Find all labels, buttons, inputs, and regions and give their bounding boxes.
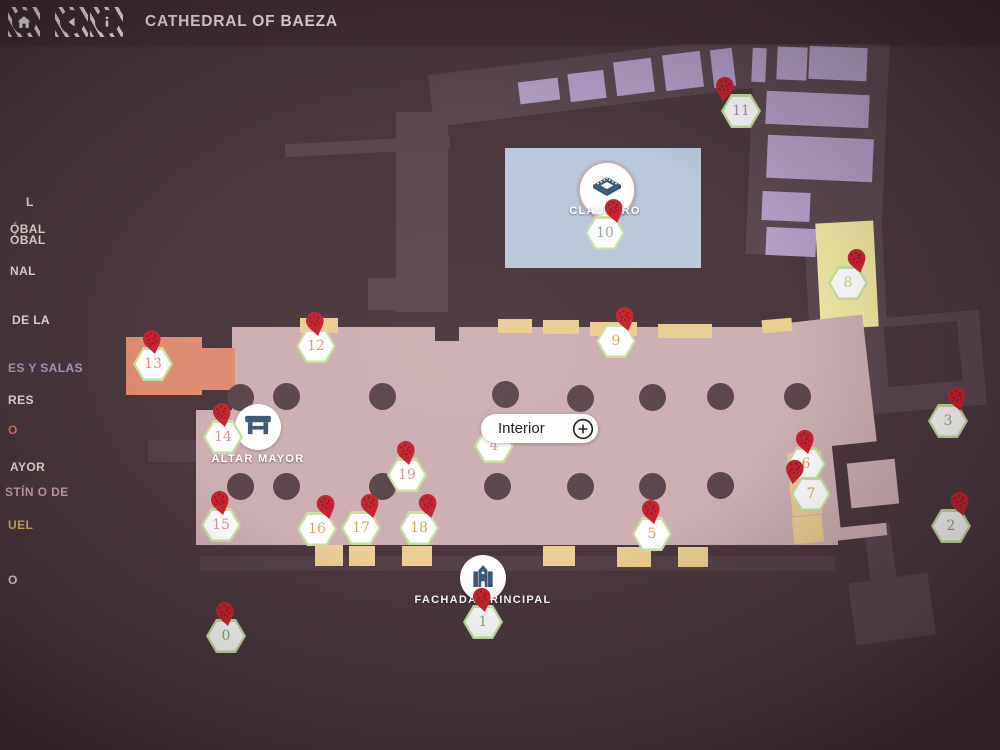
pillar	[567, 385, 594, 412]
cloister-west-notch	[368, 278, 448, 310]
east-room	[751, 48, 766, 83]
north-room	[662, 51, 704, 91]
info-button[interactable]	[90, 7, 123, 37]
sidebar-item[interactable]: RES	[8, 393, 34, 407]
pillar	[707, 383, 734, 410]
chapel	[792, 515, 825, 545]
header-bar: CATHEDRAL OF BAEZA	[0, 0, 1000, 44]
pillar	[273, 473, 300, 500]
cathedral-map-screen: CLAUSTRO ALTAR MAYOR FACHADA	[0, 0, 1000, 750]
southeast-annex	[848, 573, 936, 646]
sidebar-item[interactable]: L	[26, 195, 34, 209]
chapel	[349, 546, 375, 566]
pillar	[707, 472, 734, 499]
pillar	[227, 473, 254, 500]
map-marker-13[interactable]: 13	[133, 347, 173, 381]
map-marker-0[interactable]: 0	[206, 619, 246, 653]
map-marker-10[interactable]: 10	[585, 216, 625, 250]
sidebar-item[interactable]: O	[8, 423, 18, 437]
sidebar-item[interactable]: ES Y SALAS	[8, 361, 83, 375]
interior-view-button[interactable]: Interior	[481, 414, 598, 443]
east-room	[765, 227, 816, 257]
interior-button-label: Interior	[498, 420, 545, 437]
pillar	[639, 473, 666, 500]
north-room	[567, 70, 606, 102]
altar-mayor-label: ALTAR MAYOR	[188, 453, 328, 465]
sacristy-room	[847, 459, 899, 509]
capilla-dorada-tab	[200, 348, 235, 390]
red-pin-icon	[782, 458, 806, 491]
east-room	[765, 91, 869, 128]
east-room	[808, 46, 867, 81]
pillar	[484, 473, 511, 500]
sidebar-item[interactable]: O	[8, 573, 18, 587]
home-icon	[12, 10, 36, 34]
north-room	[613, 58, 655, 96]
chapel	[678, 547, 708, 567]
chapel	[402, 546, 432, 566]
northeast-tower	[884, 321, 963, 387]
map-marker-14[interactable]: 14	[203, 420, 243, 454]
pillar	[492, 381, 519, 408]
pillar	[639, 384, 666, 411]
red-pin-icon	[712, 75, 736, 108]
map-marker-8[interactable]: 8	[828, 266, 868, 300]
chapel	[761, 318, 792, 334]
chapel	[498, 319, 532, 333]
map-marker-3[interactable]: 3	[928, 404, 968, 438]
chapel	[658, 324, 712, 338]
map-marker-5[interactable]: 5	[632, 517, 672, 551]
map-marker-12[interactable]: 12	[296, 329, 336, 363]
east-room	[761, 191, 810, 222]
east-room	[776, 46, 807, 80]
map-marker-18[interactable]: 18	[399, 511, 439, 545]
map-marker-9[interactable]: 9	[596, 324, 636, 358]
back-button[interactable]	[55, 7, 88, 37]
pillar	[784, 383, 811, 410]
plus-icon	[572, 418, 594, 440]
chapel	[315, 545, 343, 566]
map-marker-7[interactable]: 7	[791, 477, 831, 511]
altar-icon	[244, 414, 272, 441]
map-marker-19[interactable]: 19	[387, 458, 427, 492]
sidebar-item[interactable]: ÓBAL	[10, 233, 46, 247]
chapel	[543, 320, 579, 334]
chapel	[543, 546, 575, 566]
sidebar-item[interactable]: NAL	[10, 264, 36, 278]
info-icon	[95, 10, 119, 34]
pillar	[567, 473, 594, 500]
back-icon	[60, 10, 84, 34]
south-wall	[200, 556, 835, 571]
home-button[interactable]	[8, 7, 40, 37]
sidebar-item[interactable]: AYOR	[10, 460, 45, 474]
map-marker-17[interactable]: 17	[341, 511, 381, 545]
map-marker-2[interactable]: 2	[931, 509, 971, 543]
map-marker-1[interactable]: 1	[463, 605, 503, 639]
east-room	[766, 135, 874, 183]
sidebar-item[interactable]: DE LA	[12, 313, 50, 327]
nave-top-notch	[435, 327, 459, 341]
map-marker-11[interactable]: 11	[721, 94, 761, 128]
page-title: CATHEDRAL OF BAEZA	[145, 0, 338, 44]
map-marker-15[interactable]: 15	[201, 508, 241, 542]
sidebar-item[interactable]: STÍN O DE	[5, 485, 69, 499]
map-marker-16[interactable]: 16	[297, 512, 337, 546]
pillar	[273, 383, 300, 410]
sidebar-item[interactable]: UEL	[8, 518, 33, 532]
pillar	[369, 383, 396, 410]
